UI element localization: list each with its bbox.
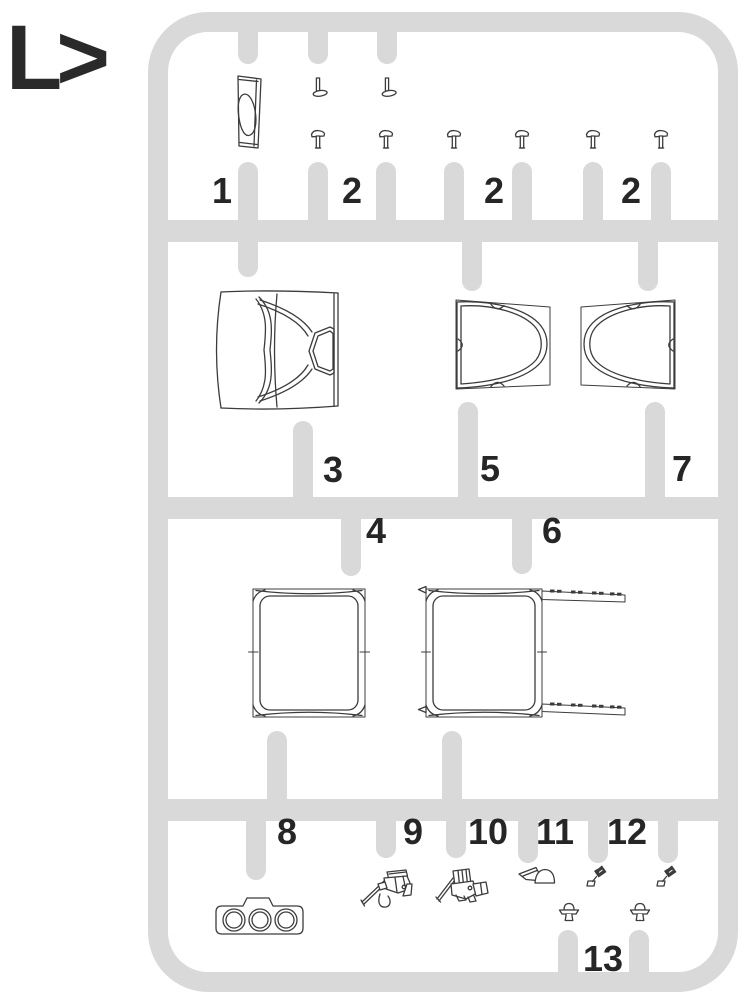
part-5-drawing	[456, 300, 550, 389]
rail-dash-marks	[550, 590, 622, 709]
part-6-drawing	[419, 587, 626, 718]
part-9-drawing	[361, 870, 412, 907]
part-12-drawing	[587, 866, 677, 887]
part-label-11: 11	[536, 814, 574, 850]
sprue-diagram-page: L> 1 2 2 2 3 5 7 4 6 8 9 10 11 12 13	[0, 0, 749, 1000]
part-7-drawing	[581, 300, 675, 389]
part-label-10: 10	[468, 814, 508, 850]
part-label-4: 4	[366, 513, 386, 549]
part-label-2b: 2	[484, 173, 504, 209]
part-2-pins-lower	[312, 131, 668, 148]
part-label-5: 5	[480, 451, 500, 487]
sprue-logo: L>	[6, 12, 104, 104]
part-label-2a: 2	[342, 173, 362, 209]
part-label-6: 6	[542, 513, 562, 549]
part-label-9: 9	[403, 814, 423, 850]
part-2-pins-upper	[313, 78, 397, 97]
part-1-drawing	[236, 76, 261, 148]
part-label-2c: 2	[621, 173, 641, 209]
part-11-drawing	[519, 868, 555, 884]
part-label-8: 8	[277, 814, 297, 850]
part-4-drawing	[249, 589, 370, 717]
part-3-drawing	[217, 291, 339, 409]
part-label-12: 12	[607, 814, 647, 850]
part-label-13: 13	[583, 941, 623, 977]
part-label-1: 1	[212, 173, 232, 209]
part-10-drawing	[436, 869, 488, 902]
part-8-drawing	[216, 898, 303, 934]
part-label-3: 3	[323, 452, 343, 488]
part-label-7: 7	[672, 451, 692, 487]
part-13-drawing	[560, 904, 650, 921]
